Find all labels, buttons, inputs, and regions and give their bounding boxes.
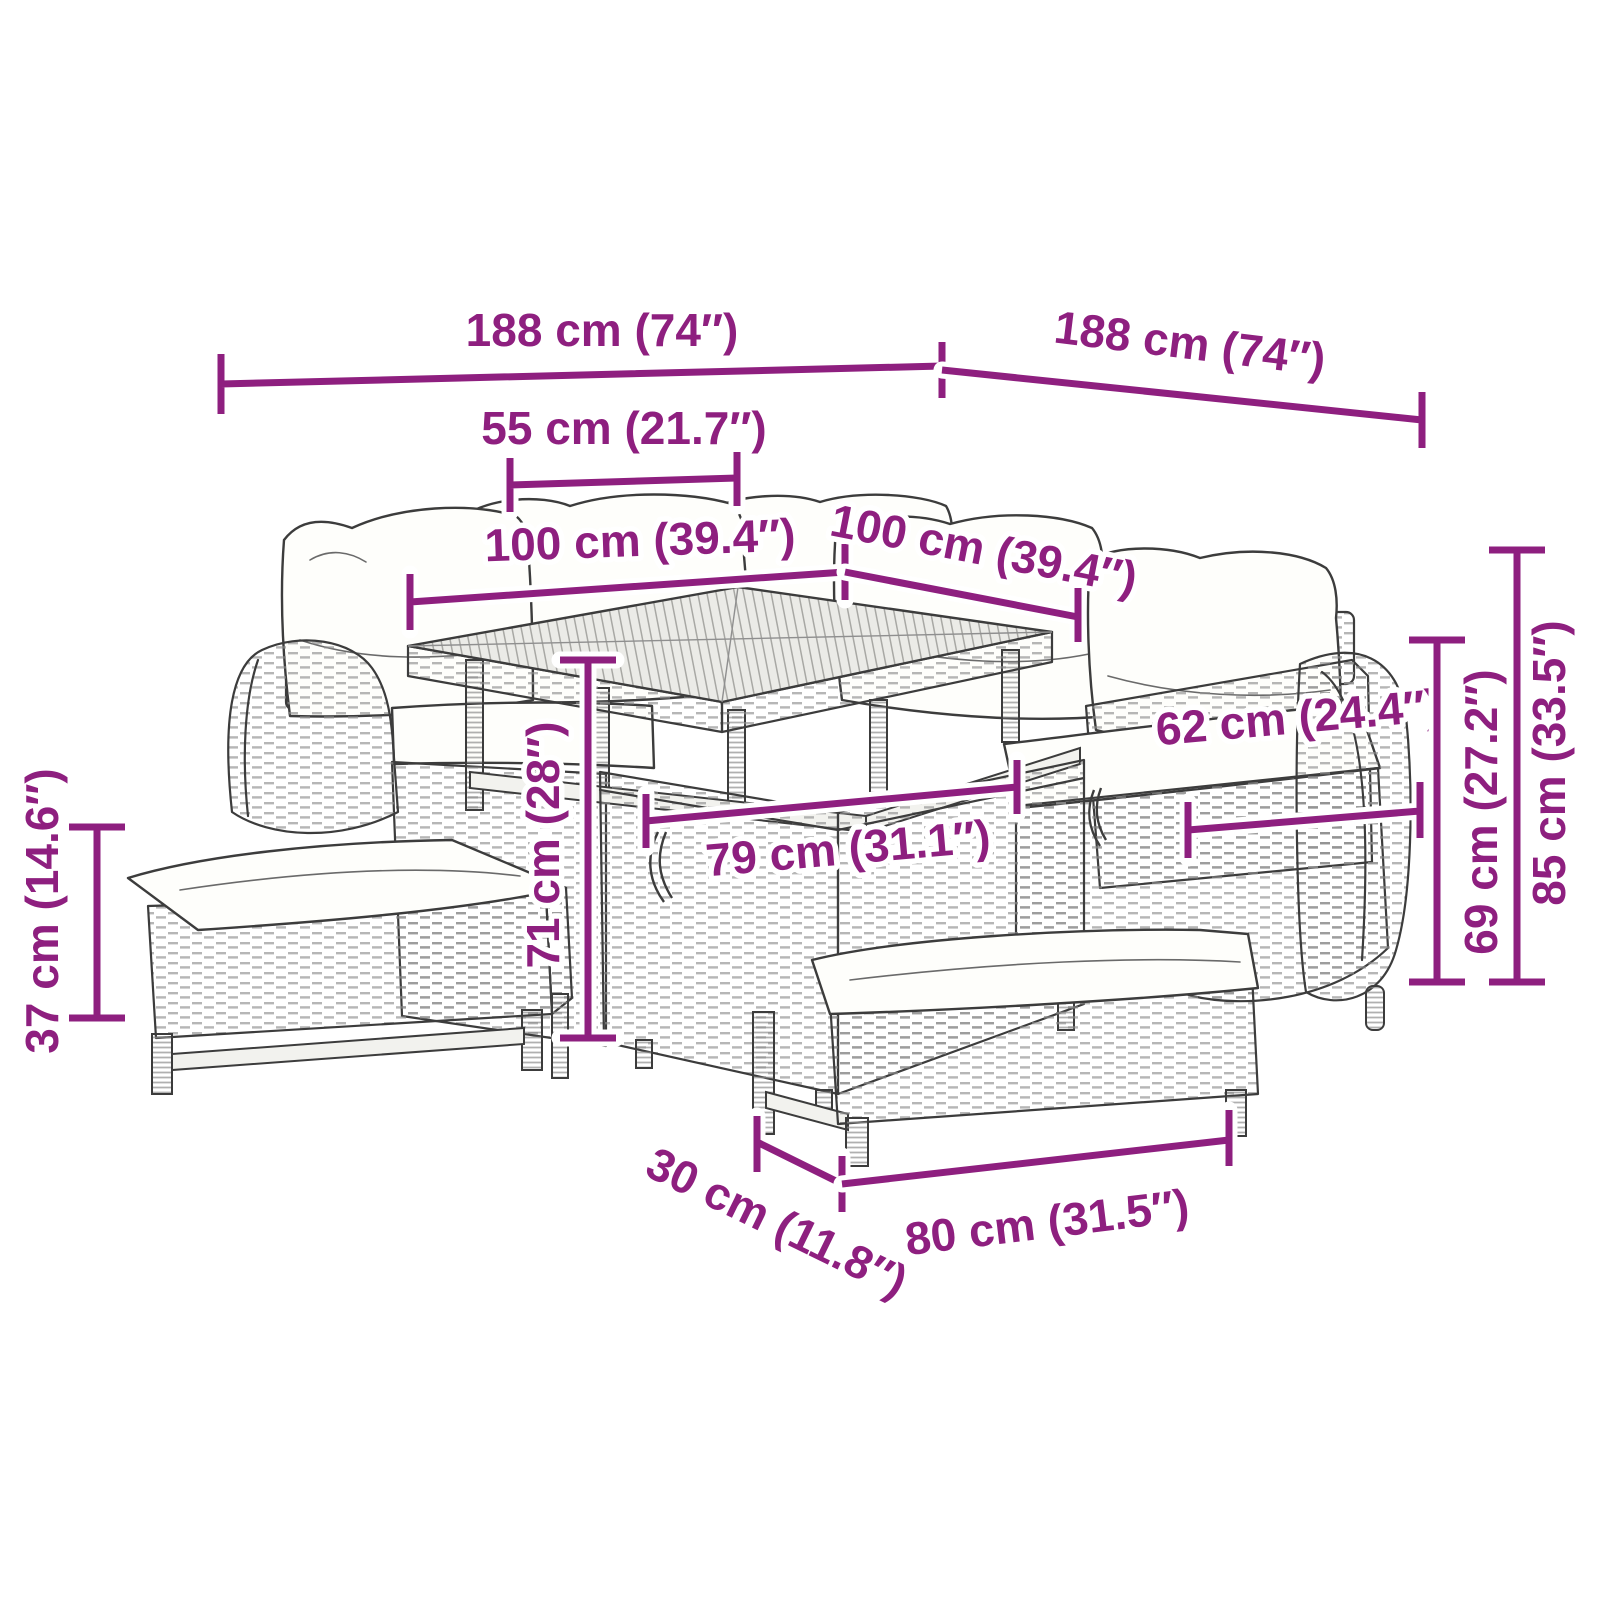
- dim-label: 188 cm (74″): [1052, 301, 1329, 386]
- dim-label: 37 cm (14.6″): [16, 768, 68, 1053]
- table-post: [870, 700, 887, 806]
- sofa-foot: [1366, 986, 1384, 1030]
- dim-label: 80 cm (31.5″): [902, 1179, 1192, 1265]
- dim-line: [69, 827, 125, 1018]
- sofa-arm-left: [228, 640, 398, 833]
- dim-label: 55 cm (21.7″): [481, 402, 766, 454]
- dim-label: 188 cm (74″): [466, 304, 739, 356]
- dim-overall-depth-right: 188 cm (74″): [942, 301, 1422, 448]
- dim-label: 69 cm (27.2″): [1455, 669, 1507, 954]
- dim-bench-height: 37 cm (14.6″): [16, 768, 125, 1053]
- box-foot: [636, 1040, 652, 1068]
- dimension-diagram: 188 cm (74″) 188 cm (74″) 55 cm (21.7″) …: [0, 0, 1600, 1600]
- dim-overall-width-left: 188 cm (74″): [221, 304, 942, 414]
- dim-label: 30 cm (11.8″): [638, 1137, 915, 1308]
- bench-left: [128, 840, 572, 1094]
- dim-label: 100 cm (39.4″): [484, 509, 797, 572]
- dim-bench-depth: 30 cm (11.8″): [638, 1116, 915, 1307]
- dim-bench-width: 80 cm (31.5″): [842, 1110, 1229, 1265]
- dim-label: 85 cm (33.5″): [1523, 620, 1575, 905]
- dim-label: 71 cm (28″): [517, 721, 569, 968]
- bench-leg: [152, 1034, 172, 1094]
